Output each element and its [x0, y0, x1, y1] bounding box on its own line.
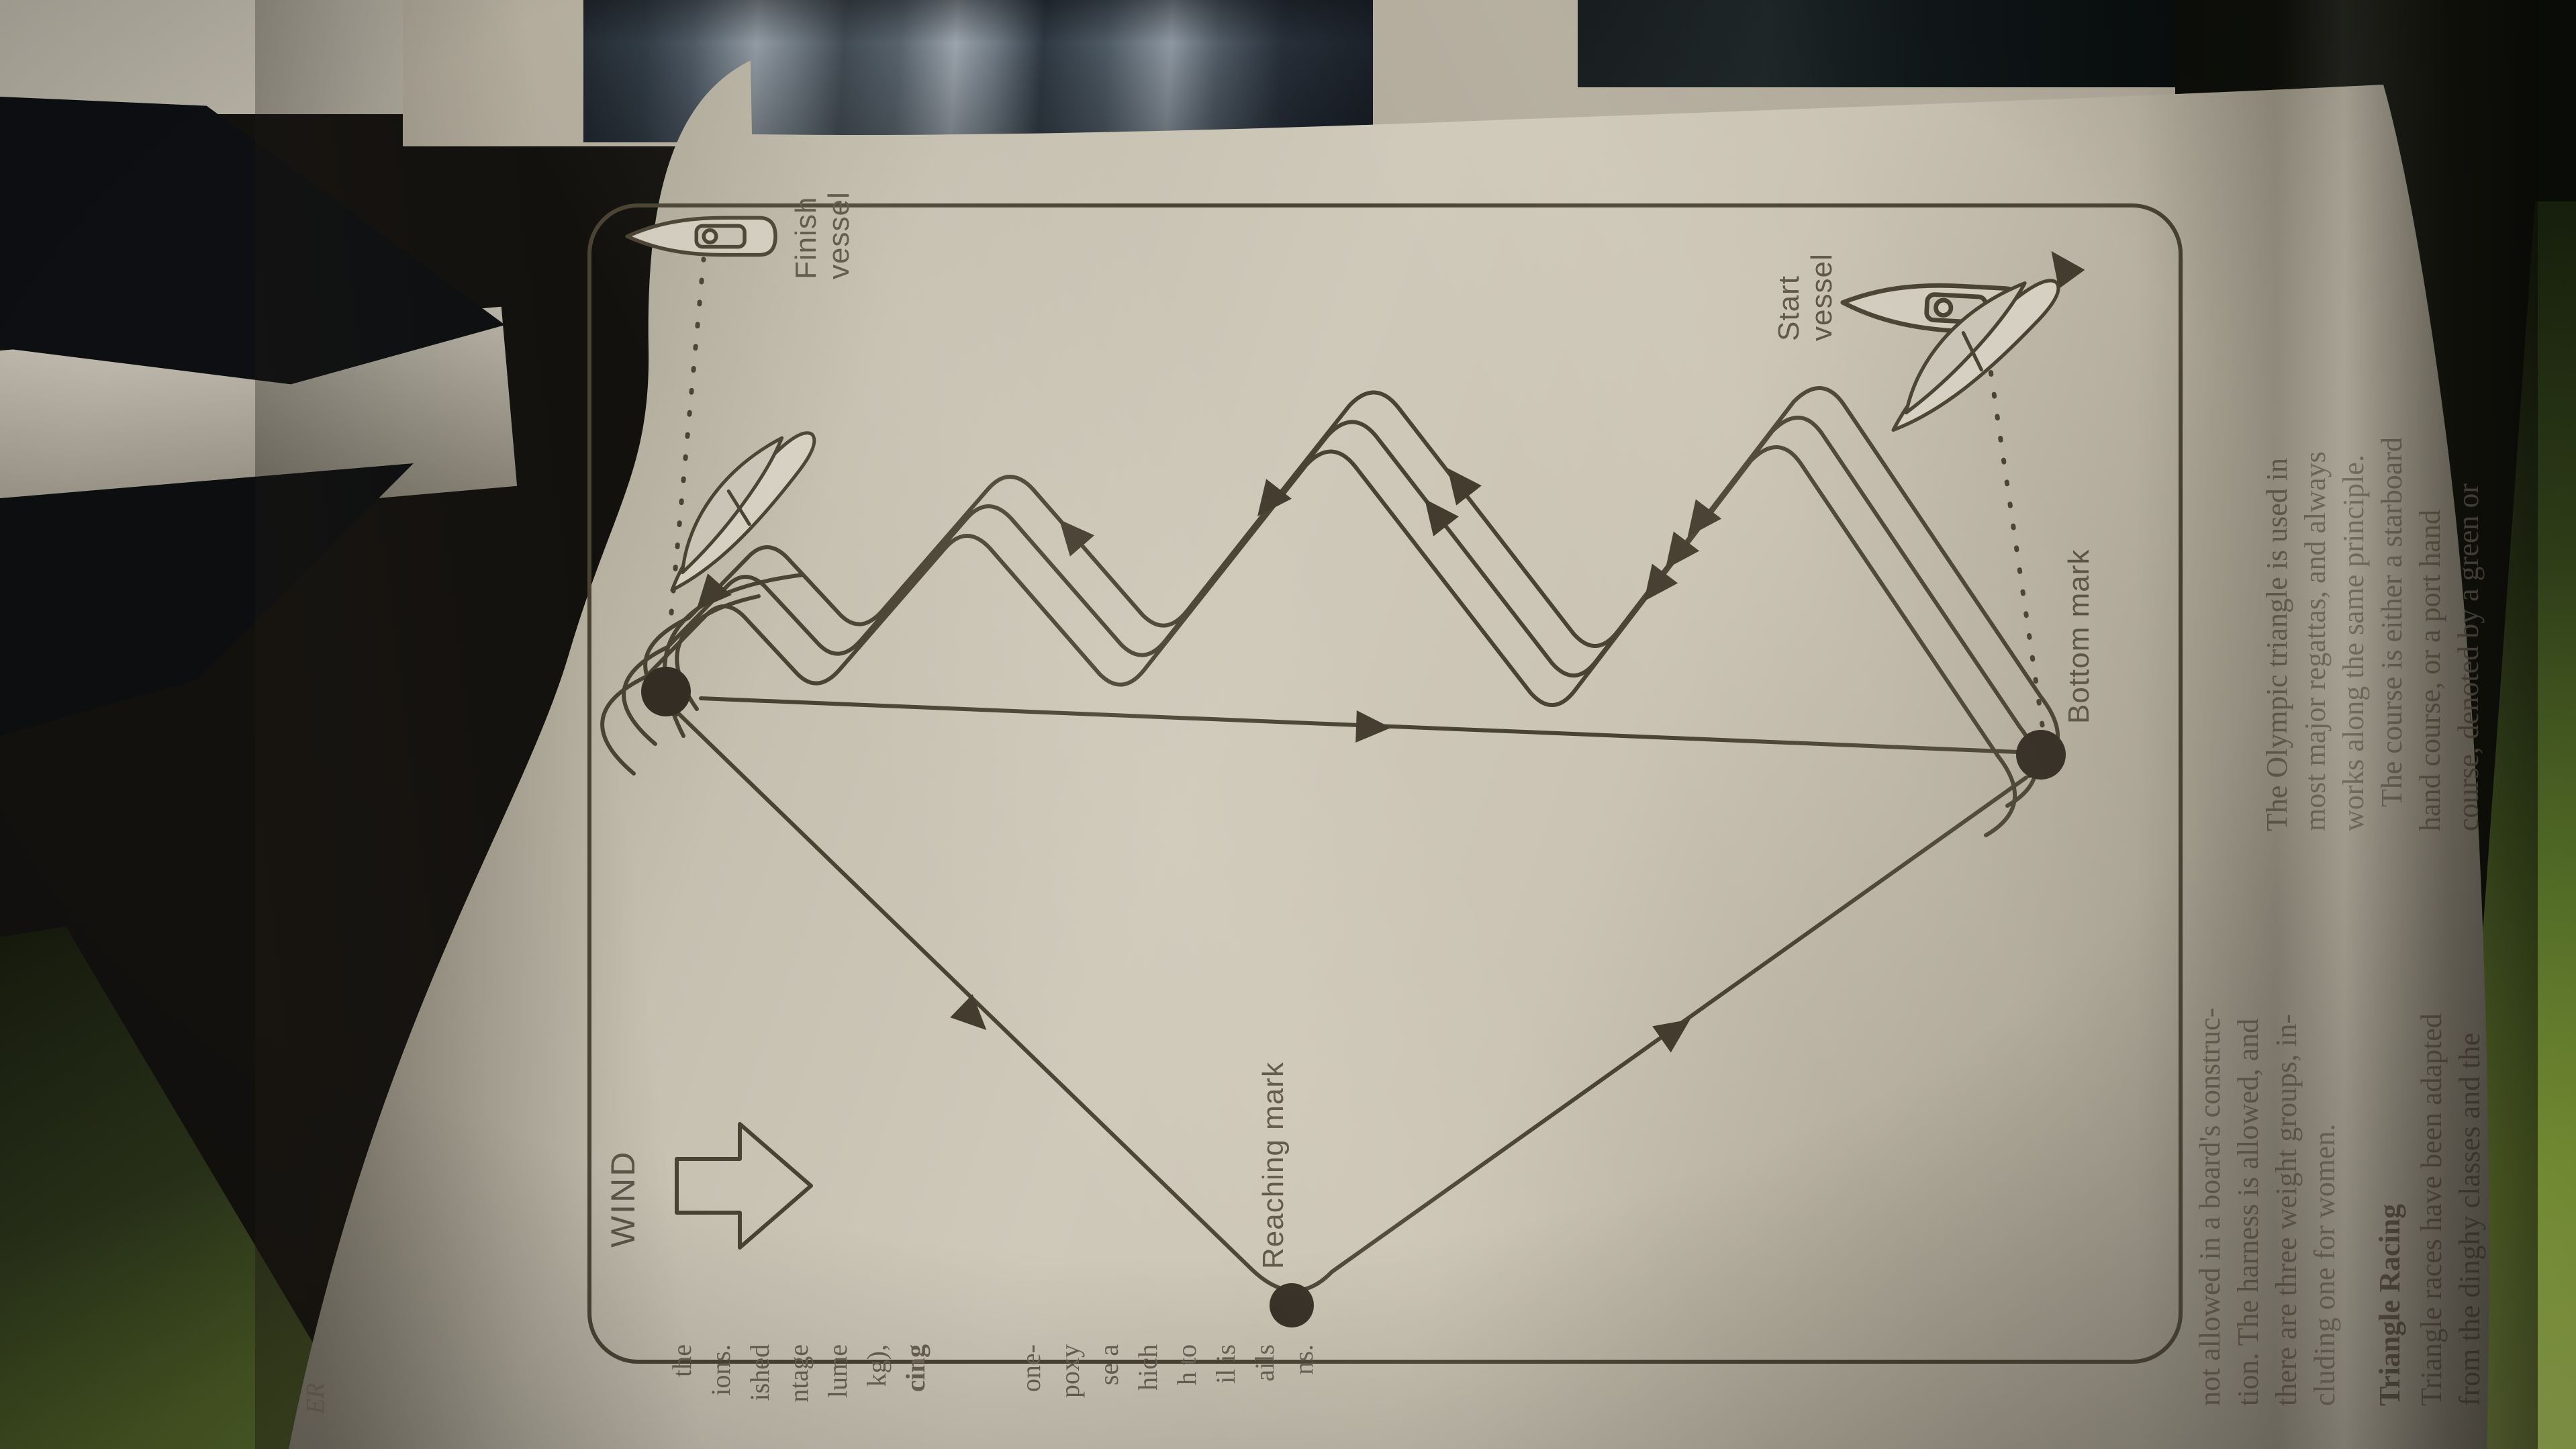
body-line: hand course, or a port hand — [2413, 510, 2447, 831]
body-line: not allowed in a board's construc- — [2193, 1008, 2227, 1406]
body-line: course, denoted by a green or — [2451, 483, 2485, 831]
body-line: tion. The harness is allowed, and — [2231, 1019, 2265, 1406]
book-photo: { "diagram": { "wind_label": "WIND", "re… — [0, 0, 2576, 1449]
body-line: Triangle races have been adapted — [2414, 1013, 2448, 1406]
body-line: most major regattas, and always — [2298, 451, 2332, 831]
text-column-left: not allowed in a board's construc- tion.… — [0, 869, 2576, 1406]
body-line: works along the same principle. — [2336, 455, 2371, 831]
body-line: The course is either a starboard — [2375, 437, 2409, 807]
section-heading: Triangle Racing — [2373, 1204, 2407, 1406]
body-line: from the dinghy classes and the — [2452, 1033, 2487, 1406]
body-line: cluding one for women. — [2307, 1124, 2342, 1406]
text-column-right: The Olympic triangle is used in most maj… — [0, 207, 2576, 831]
body-line: The Olympic triangle is used in — [2260, 458, 2294, 831]
page-content-rotated: WIND Reaching mark Bottom mark Finish ve… — [0, 0, 2576, 1449]
body-line: there are three weight groups, in- — [2269, 1014, 2303, 1406]
